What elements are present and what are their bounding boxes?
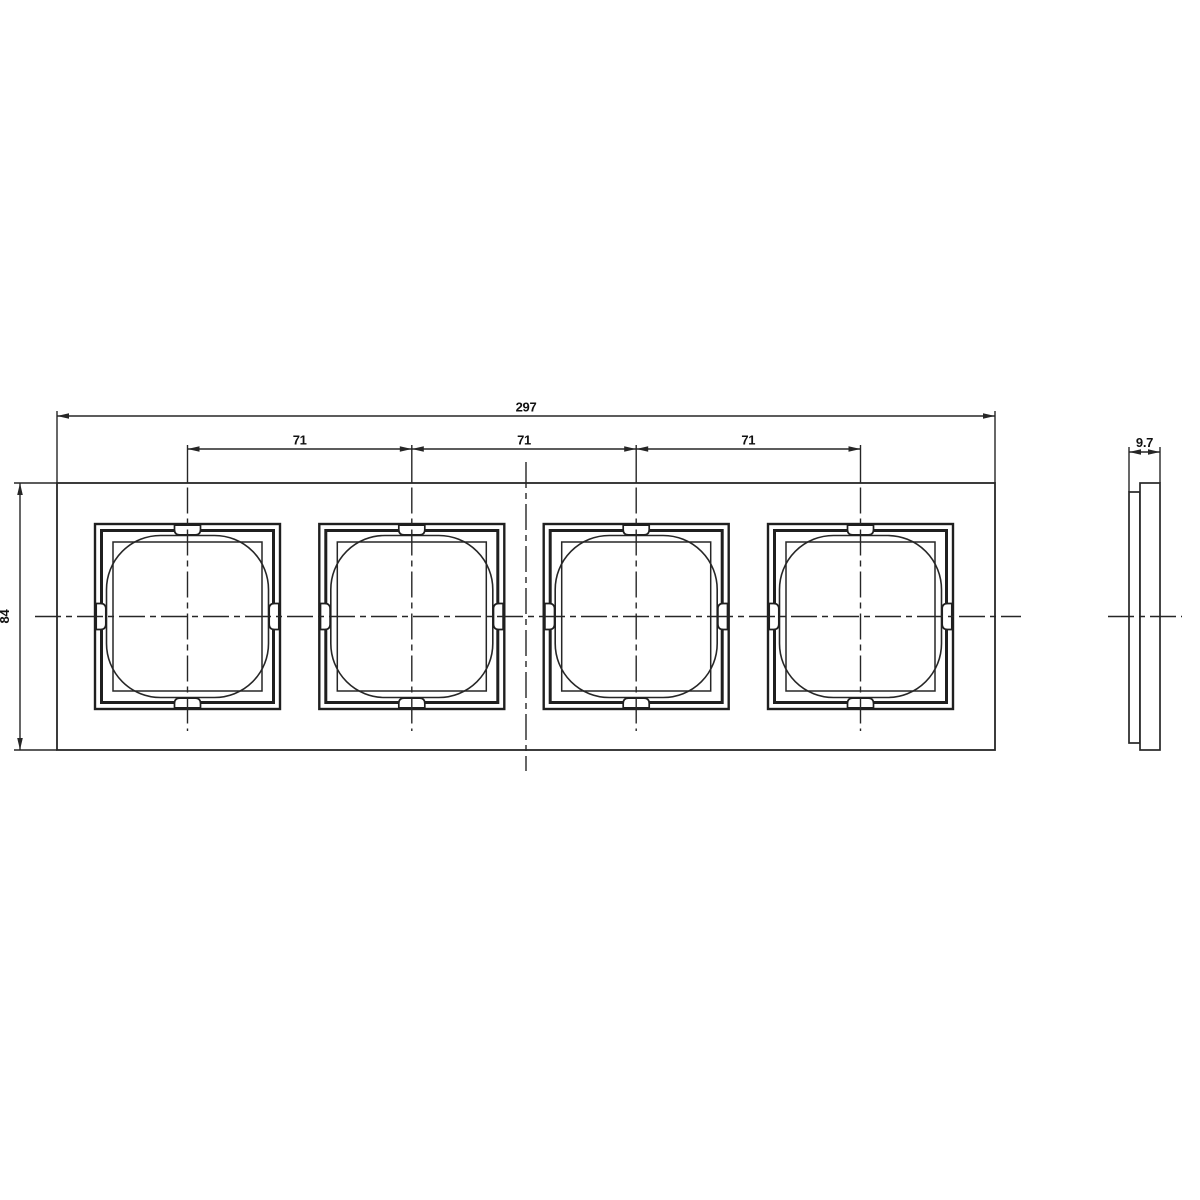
arrowhead-left <box>57 413 69 419</box>
arrowhead-right <box>1148 449 1160 455</box>
dim-label-pitch-left: 71 <box>293 433 307 448</box>
technical-drawing-canvas: 297 71 71 71 84 9.7 <box>0 0 1200 1200</box>
arrowhead-bottom <box>17 738 23 750</box>
side-view-back-profile <box>1129 492 1140 743</box>
arrowhead <box>636 446 648 452</box>
arrowhead-top <box>17 483 23 495</box>
arrowhead <box>188 446 200 452</box>
dim-label-pitch-center: 71 <box>517 433 531 448</box>
front-view <box>35 462 1021 771</box>
arrowhead-left <box>1129 449 1141 455</box>
arrowhead-right <box>983 413 995 419</box>
arrowhead <box>624 446 636 452</box>
drawing-sheet: 297 71 71 71 84 9.7 <box>0 0 1200 1200</box>
arrowhead <box>849 446 861 452</box>
dim-label-thickness: 9.7 <box>1136 435 1153 450</box>
arrowhead <box>412 446 424 452</box>
side-view <box>1108 483 1182 750</box>
arrowhead <box>400 446 412 452</box>
dim-label-overall-height: 84 <box>0 609 12 624</box>
dimension-window-pitch: 71 71 71 <box>188 433 861 484</box>
dim-label-overall-width: 297 <box>516 400 537 415</box>
dim-label-pitch-right: 71 <box>741 433 755 448</box>
